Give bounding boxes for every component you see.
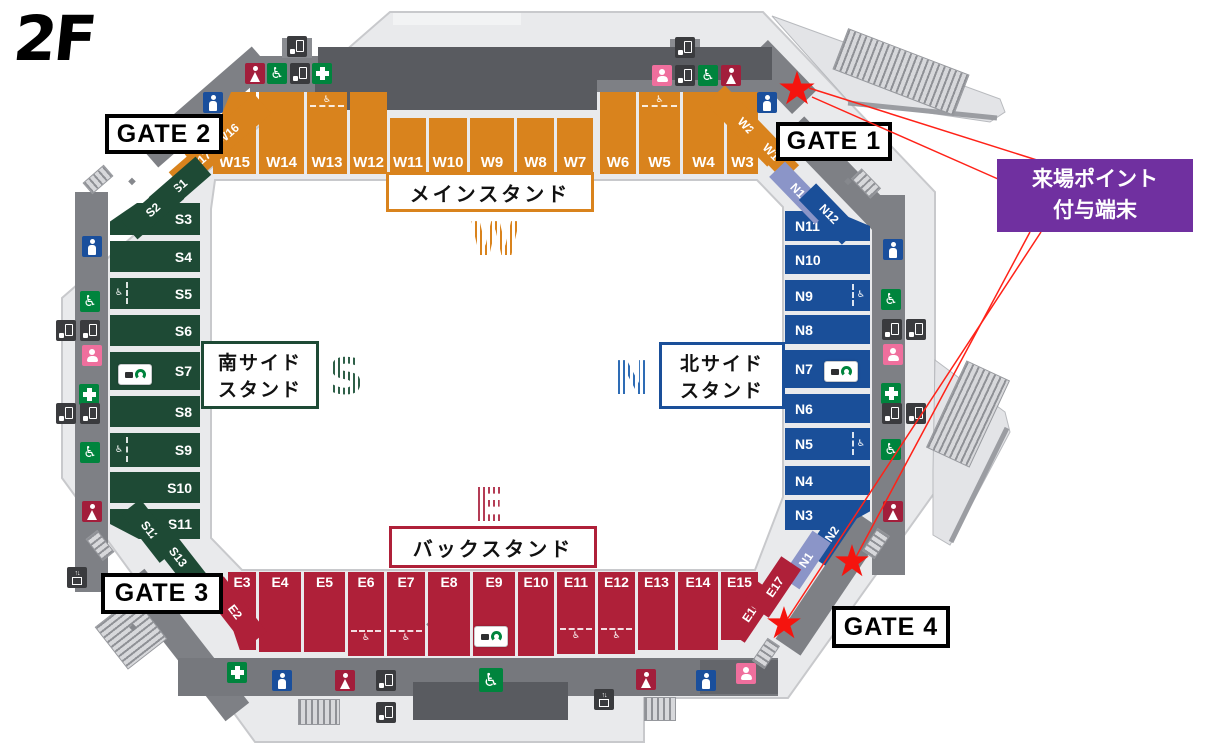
diamond-marker: ◆: [128, 177, 136, 187]
wheelchair-icon: ♿: [267, 63, 287, 84]
male-toilet-icon: [757, 92, 777, 113]
section-E10: E10: [518, 572, 554, 656]
vending-machine-icon: [376, 670, 396, 691]
vending-machine-icon: [675, 37, 695, 58]
male-toilet-icon: [82, 236, 102, 257]
diamond-marker: ◆: [844, 177, 852, 187]
section-E5: E5: [304, 572, 345, 652]
section-N5: N5 ♿: [785, 428, 870, 460]
north-stand-label: 北サイド スタンド: [659, 342, 785, 409]
first-aid-icon: [227, 662, 247, 683]
gate-3-label: GATE 3: [101, 573, 223, 614]
section-E4: E4: [259, 572, 301, 652]
section-W13: W13 ♿: [307, 92, 347, 174]
main-stand-letter: W: [470, 216, 521, 262]
first-aid-icon: [312, 63, 332, 84]
section-S9: S9 ♿: [110, 433, 200, 467]
section-N10: N10: [785, 245, 870, 274]
first-aid-icon: [881, 383, 901, 404]
gate-4-label: GATE 4: [832, 606, 950, 648]
section-W10: W10: [429, 118, 467, 174]
section-S10: S10: [110, 472, 200, 503]
section-W14: W14: [259, 92, 304, 174]
section-W8: W8: [517, 118, 554, 174]
wheelchair-seat-marker: ♿: [560, 628, 592, 640]
wheelchair-seat-marker: ♿: [852, 284, 865, 306]
vending-machine-icon: [80, 320, 100, 341]
gate-1-label: GATE 1: [776, 122, 892, 161]
section-E14: E14: [678, 572, 718, 650]
female-toilet-icon: [335, 670, 355, 691]
section-E8: E8: [428, 572, 470, 656]
baby-room-icon: [652, 65, 672, 86]
wheelchair-icon: ♿: [881, 289, 901, 310]
wheelchair-seat-marker: ♿: [115, 437, 128, 461]
elevator-icon: ↑↓: [594, 689, 614, 710]
section-W11: W11: [390, 118, 426, 174]
section-E13: E13: [638, 572, 675, 650]
vending-machine-icon: [906, 319, 926, 340]
section-E7: E7 ♿: [387, 572, 425, 656]
section-W7: W7: [557, 118, 593, 174]
ic-reader-icon: [474, 626, 508, 647]
vending-machine-icon: [80, 403, 100, 424]
vending-machine-icon: [287, 36, 307, 57]
section-S4: S4: [110, 241, 200, 272]
terminal-callout: 来場ポイント 付与端末: [997, 159, 1193, 232]
vending-machine-icon: [290, 63, 310, 84]
male-toilet-icon: [696, 670, 716, 691]
top-edge-step: [393, 13, 521, 25]
entry-point-star: ★: [832, 540, 871, 584]
wheelchair-icon: ♿: [479, 668, 503, 692]
section-E6: E6 ♿: [348, 572, 384, 656]
wheelchair-seat-marker: ♿: [852, 432, 865, 455]
stairs: [298, 699, 340, 725]
wheelchair-seat-marker: ♿: [642, 95, 676, 107]
wheelchair-seat-marker: ♿: [351, 630, 381, 642]
first-aid-icon: [79, 384, 99, 405]
section-E11: E11 ♿: [557, 572, 595, 654]
stadium-floor-map: ◆ ◆ ◆ ◆ W15 W14 W13 ♿ W12 W11 W10 W9 W8 …: [0, 0, 1206, 753]
vending-machine-icon: [906, 403, 926, 424]
south-stand-letter: S: [328, 352, 364, 402]
section-S5: S5 ♿: [110, 278, 200, 309]
back-stand-label: バックスタンド: [389, 526, 597, 568]
back-stand-letter: E: [473, 482, 504, 528]
north-stand-letter: N: [613, 355, 652, 401]
wheelchair-seat-marker: ♿: [601, 628, 632, 640]
vending-machine-icon: [675, 65, 695, 86]
wheelchair-icon: ♿: [80, 291, 100, 312]
entry-point-star: ★: [764, 602, 803, 646]
section-W9: W9: [470, 118, 514, 174]
main-stand-label: メインスタンド: [386, 172, 594, 212]
section-N4: N4: [785, 466, 870, 495]
wheelchair-icon: ♿: [881, 439, 901, 460]
vending-machine-icon: [376, 702, 396, 723]
female-toilet-icon: [245, 63, 265, 84]
diamond-marker: ◆: [129, 623, 137, 633]
section-N8: N8: [785, 315, 870, 344]
vending-machine-icon: [882, 403, 902, 424]
baby-room-icon: [883, 344, 903, 365]
wheelchair-icon: ♿: [698, 65, 718, 86]
section-W6: W6: [600, 92, 636, 174]
female-toilet-icon: [636, 669, 656, 690]
female-toilet-icon: [721, 65, 741, 86]
ic-reader-icon: [824, 361, 858, 382]
elevator-icon: ↑↓: [67, 567, 87, 588]
ic-reader-icon: [118, 364, 152, 385]
section-E12: E12 ♿: [598, 572, 635, 654]
section-S6: S6: [110, 315, 200, 346]
wheelchair-seat-marker: ♿: [310, 95, 344, 107]
section-W12: W12: [350, 92, 387, 174]
section-N9: N9 ♿: [785, 280, 870, 311]
baby-room-icon: [82, 345, 102, 366]
stairs: [644, 697, 676, 721]
entry-point-star: ★: [776, 65, 817, 111]
gate-2-label: GATE 2: [105, 114, 223, 154]
wheelchair-icon: ♿: [80, 442, 100, 463]
male-toilet-icon: [203, 92, 223, 113]
floor-label: 2F: [10, 2, 97, 75]
vending-machine-icon: [882, 319, 902, 340]
wheelchair-seat-marker: ♿: [390, 630, 422, 642]
male-toilet-icon: [272, 670, 292, 691]
south-stand-label: 南サイド スタンド: [201, 341, 319, 409]
baby-room-icon: [736, 663, 756, 684]
vending-machine-icon: [56, 320, 76, 341]
male-toilet-icon: [883, 239, 903, 260]
vending-machine-icon: [56, 403, 76, 424]
section-S8: S8: [110, 396, 200, 427]
female-toilet-icon: [82, 501, 102, 522]
wheelchair-seat-marker: ♿: [115, 282, 128, 304]
section-W5: W5 ♿: [639, 92, 680, 174]
section-N6: N6: [785, 394, 870, 423]
female-toilet-icon: [883, 501, 903, 522]
